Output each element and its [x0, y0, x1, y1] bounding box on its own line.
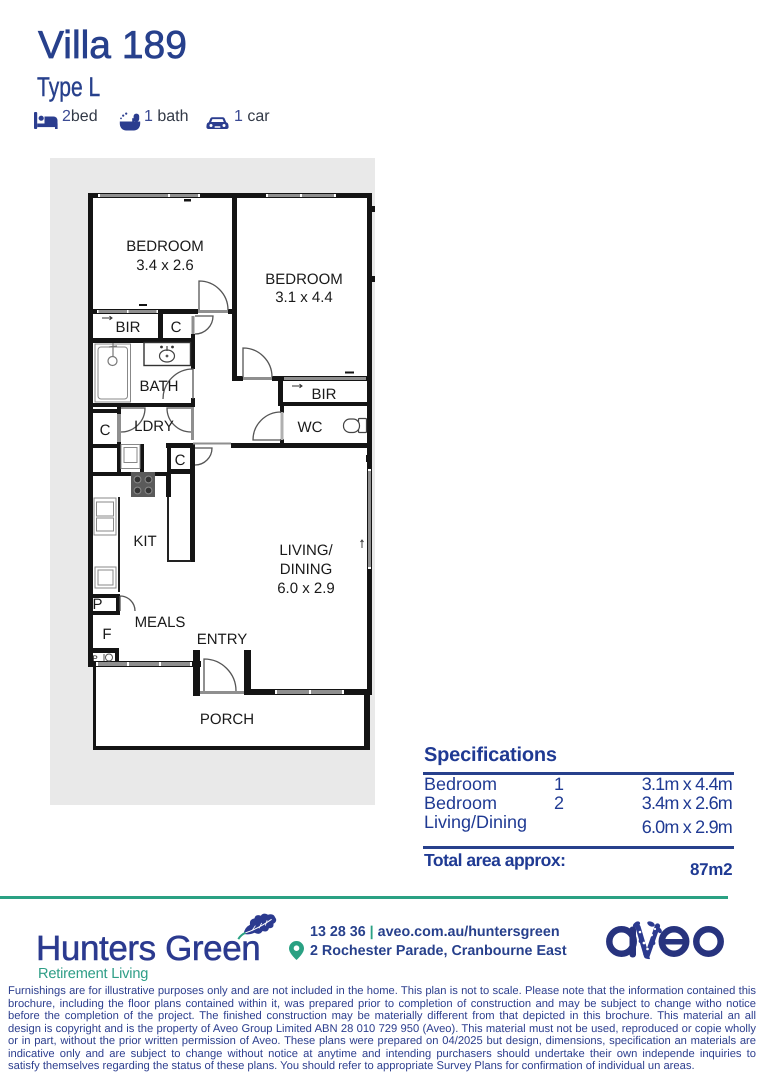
- svg-text:C: C: [100, 422, 111, 439]
- svg-text:WC: WC: [298, 419, 323, 436]
- svg-text:P: P: [92, 654, 97, 663]
- svg-text:BIR: BIR: [115, 319, 140, 336]
- svg-text:ENTRY: ENTRY: [197, 631, 248, 648]
- svg-text:F: F: [102, 626, 111, 643]
- svg-text:BATH: BATH: [140, 378, 179, 395]
- svg-text:MEALS: MEALS: [135, 614, 186, 631]
- svg-text:KIT: KIT: [133, 533, 156, 550]
- svg-text:C: C: [175, 452, 186, 469]
- svg-text:C: C: [171, 319, 182, 336]
- svg-text:BEDROOM: BEDROOM: [265, 271, 343, 288]
- svg-text:PORCH: PORCH: [200, 711, 254, 728]
- svg-text:3.1 x 4.4: 3.1 x 4.4: [275, 289, 333, 306]
- svg-text:DINING: DINING: [280, 561, 333, 578]
- svg-text:BEDROOM: BEDROOM: [126, 238, 204, 255]
- svg-text:LIVING/: LIVING/: [279, 542, 333, 559]
- svg-text:P: P: [92, 596, 102, 613]
- svg-text:6.0 x 2.9: 6.0 x 2.9: [277, 580, 335, 597]
- svg-text:3.4 x 2.6: 3.4 x 2.6: [136, 257, 194, 274]
- svg-text:BIR: BIR: [311, 386, 336, 403]
- svg-text:LDRY: LDRY: [134, 418, 174, 435]
